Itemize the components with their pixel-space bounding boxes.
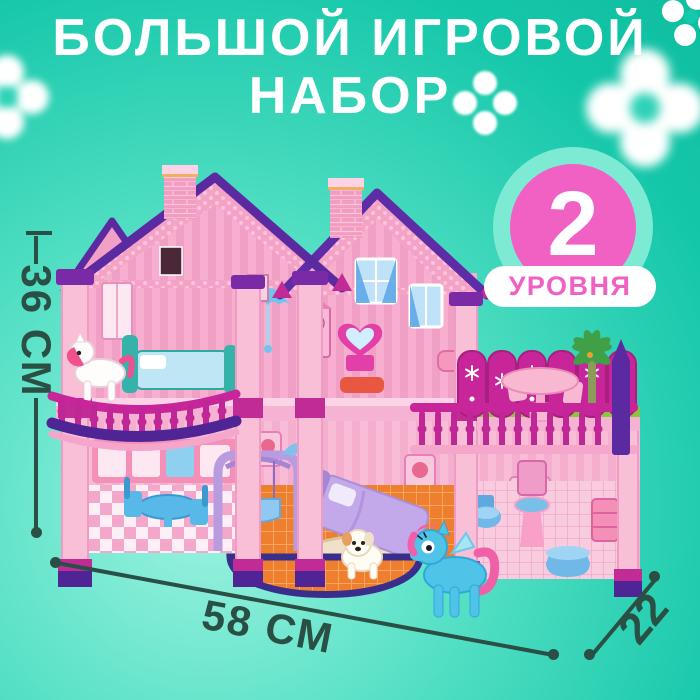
- height-dimension-label: 36 СМ: [12, 264, 60, 397]
- measure-dot: [50, 557, 61, 568]
- title-line-2: НАБОР: [0, 67, 700, 125]
- measure-dot: [649, 571, 660, 582]
- sofa-icon: [340, 377, 384, 393]
- window-icon: [410, 285, 442, 327]
- height-measure-line: [34, 236, 38, 264]
- window-icon: [356, 259, 396, 303]
- measure-dot: [548, 649, 559, 660]
- levels-number: 2: [547, 178, 598, 270]
- cabinet-icon: [592, 499, 618, 541]
- finial-post-icon: [612, 339, 630, 455]
- page-title: БОЛЬШОЙ ИГРОВОЙ НАБОР: [0, 9, 700, 125]
- height-measure-tick: [26, 231, 52, 235]
- measure-dot: [584, 649, 595, 660]
- measure-dot: [31, 527, 42, 538]
- levels-label-pill: УРОВНЯ: [484, 266, 656, 307]
- height-measure-line: [34, 398, 38, 528]
- bathtub-icon: [546, 546, 590, 577]
- title-line-1: БОЛЬШОЙ ИГРОВОЙ: [0, 9, 700, 67]
- levels-label: УРОВНЯ: [509, 271, 632, 302]
- product-card: { "title": {"line1": "БОЛЬШОЙ ИГРОВОЙ", …: [0, 0, 700, 700]
